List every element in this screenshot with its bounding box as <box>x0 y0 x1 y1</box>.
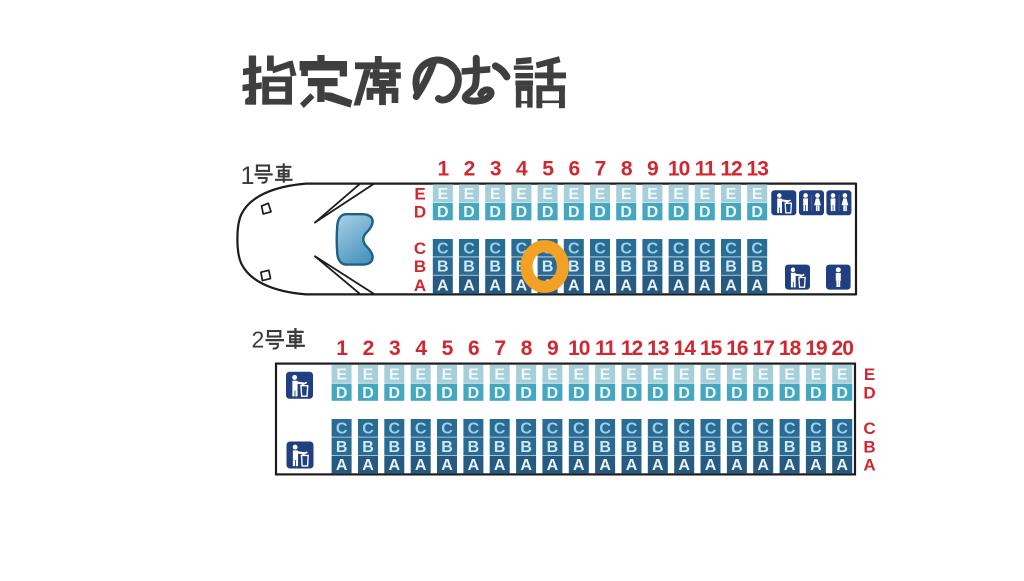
svg-text:D: D <box>863 383 875 402</box>
svg-text:B: B <box>699 259 711 276</box>
svg-text:16: 16 <box>726 337 748 360</box>
svg-text:E: E <box>336 367 347 384</box>
svg-text:7: 7 <box>595 158 606 181</box>
svg-text:A: A <box>673 277 685 294</box>
svg-text:1: 1 <box>241 162 255 190</box>
svg-text:E: E <box>494 367 505 384</box>
svg-text:B: B <box>678 439 690 456</box>
svg-text:C: C <box>725 240 737 257</box>
svg-text:A: A <box>652 457 664 474</box>
svg-text:A: A <box>414 276 426 295</box>
svg-text:B: B <box>463 259 475 276</box>
svg-text:C: C <box>673 240 685 257</box>
svg-text:D: D <box>415 385 427 402</box>
svg-text:A: A <box>437 277 449 294</box>
svg-text:C: C <box>620 240 632 257</box>
svg-text:E: E <box>626 367 637 384</box>
svg-text:A: A <box>620 277 632 294</box>
svg-text:B: B <box>731 439 743 456</box>
svg-text:12: 12 <box>720 158 742 181</box>
svg-text:1: 1 <box>336 337 348 360</box>
svg-text:E: E <box>415 367 426 384</box>
svg-text:C: C <box>362 421 374 438</box>
svg-text:B: B <box>336 439 348 456</box>
svg-text:E: E <box>679 367 690 384</box>
svg-text:D: D <box>573 385 585 402</box>
svg-text:C: C <box>626 421 638 438</box>
svg-text:11: 11 <box>695 158 717 181</box>
svg-text:E: E <box>864 365 875 384</box>
svg-text:E: E <box>673 186 684 203</box>
svg-text:B: B <box>437 259 449 276</box>
svg-text:D: D <box>647 204 659 221</box>
svg-text:D: D <box>699 204 711 221</box>
svg-text:5: 5 <box>542 158 554 181</box>
svg-text:9: 9 <box>547 337 558 360</box>
svg-text:D: D <box>414 203 426 222</box>
svg-text:C: C <box>415 421 427 438</box>
svg-text:D: D <box>731 385 743 402</box>
svg-text:B: B <box>494 439 506 456</box>
svg-text:C: C <box>705 421 717 438</box>
svg-text:E: E <box>464 186 475 203</box>
svg-text:A: A <box>468 457 480 474</box>
svg-text:C: C <box>441 421 453 438</box>
svg-text:B: B <box>599 439 611 456</box>
svg-text:B: B <box>362 439 374 456</box>
svg-text:5: 5 <box>442 337 454 360</box>
svg-text:E: E <box>568 186 579 203</box>
svg-text:A: A <box>705 457 717 474</box>
svg-text:C: C <box>494 421 506 438</box>
svg-text:A: A <box>441 457 453 474</box>
svg-text:C: C <box>414 239 426 258</box>
svg-text:C: C <box>751 240 763 257</box>
svg-text:D: D <box>784 385 796 402</box>
svg-text:A: A <box>336 457 348 474</box>
svg-text:E: E <box>752 186 763 203</box>
svg-text:D: D <box>437 204 449 221</box>
svg-text:D: D <box>362 385 374 402</box>
svg-text:E: E <box>837 367 848 384</box>
svg-text:B: B <box>863 437 875 456</box>
svg-text:E: E <box>758 367 769 384</box>
svg-text:B: B <box>784 439 796 456</box>
svg-text:A: A <box>751 277 763 294</box>
svg-text:C: C <box>520 421 532 438</box>
svg-text:D: D <box>757 385 769 402</box>
svg-text:E: E <box>784 367 795 384</box>
svg-text:B: B <box>757 439 769 456</box>
svg-text:D: D <box>389 385 401 402</box>
svg-text:10: 10 <box>568 337 590 360</box>
svg-text:D: D <box>336 385 348 402</box>
svg-text:B: B <box>626 439 638 456</box>
svg-text:6: 6 <box>468 337 479 360</box>
svg-text:A: A <box>568 277 580 294</box>
svg-text:D: D <box>810 385 822 402</box>
svg-text:B: B <box>542 259 554 276</box>
svg-text:E: E <box>600 367 611 384</box>
svg-text:17: 17 <box>753 337 775 360</box>
svg-text:E: E <box>468 367 479 384</box>
svg-text:14: 14 <box>674 337 697 360</box>
svg-text:D: D <box>725 204 737 221</box>
svg-text:A: A <box>573 457 585 474</box>
svg-text:B: B <box>620 259 632 276</box>
svg-text:C: C <box>652 421 664 438</box>
svg-text:2: 2 <box>464 158 475 181</box>
svg-text:B: B <box>652 439 664 456</box>
svg-text:4: 4 <box>415 337 427 360</box>
svg-text:D: D <box>441 385 453 402</box>
svg-text:19: 19 <box>805 337 827 360</box>
svg-text:D: D <box>542 204 554 221</box>
svg-text:C: C <box>594 240 606 257</box>
svg-text:A: A <box>494 457 506 474</box>
svg-text:C: C <box>836 421 848 438</box>
svg-text:2: 2 <box>252 327 265 353</box>
svg-text:A: A <box>626 457 638 474</box>
svg-text:B: B <box>725 259 737 276</box>
svg-text:E: E <box>621 186 632 203</box>
svg-text:B: B <box>836 439 848 456</box>
svg-text:D: D <box>594 204 606 221</box>
svg-text:E: E <box>542 186 553 203</box>
svg-text:8: 8 <box>621 158 633 181</box>
svg-text:E: E <box>442 367 453 384</box>
svg-text:D: D <box>547 385 559 402</box>
svg-text:B: B <box>414 257 426 276</box>
svg-text:C: C <box>463 240 475 257</box>
svg-text:C: C <box>336 421 348 438</box>
svg-text:A: A <box>415 457 427 474</box>
svg-text:D: D <box>652 385 664 402</box>
svg-text:D: D <box>494 385 506 402</box>
svg-text:E: E <box>595 186 606 203</box>
svg-text:B: B <box>705 439 717 456</box>
svg-text:C: C <box>437 240 449 257</box>
svg-text:C: C <box>699 240 711 257</box>
svg-text:E: E <box>437 186 448 203</box>
svg-text:E: E <box>521 367 532 384</box>
svg-text:D: D <box>705 385 717 402</box>
svg-text:C: C <box>757 421 769 438</box>
svg-text:A: A <box>389 457 401 474</box>
svg-text:E: E <box>726 186 737 203</box>
svg-text:B: B <box>415 439 427 456</box>
svg-text:A: A <box>599 457 611 474</box>
svg-text:2: 2 <box>363 337 374 360</box>
svg-text:20: 20 <box>832 337 854 360</box>
svg-text:B: B <box>547 439 559 456</box>
svg-text:D: D <box>463 204 475 221</box>
svg-text:B: B <box>568 259 580 276</box>
svg-text:E: E <box>363 367 374 384</box>
svg-text:A: A <box>810 457 822 474</box>
svg-text:E: E <box>414 184 425 203</box>
svg-text:15: 15 <box>700 337 723 360</box>
svg-text:E: E <box>573 367 584 384</box>
svg-text:A: A <box>725 277 737 294</box>
svg-text:A: A <box>594 277 606 294</box>
svg-text:E: E <box>647 186 658 203</box>
svg-text:B: B <box>441 439 453 456</box>
svg-text:A: A <box>699 277 711 294</box>
svg-text:A: A <box>547 457 559 474</box>
svg-text:E: E <box>516 186 527 203</box>
svg-text:12: 12 <box>621 337 643 360</box>
svg-text:E: E <box>547 367 558 384</box>
svg-text:E: E <box>652 367 663 384</box>
svg-text:E: E <box>811 367 822 384</box>
svg-text:D: D <box>568 204 580 221</box>
svg-text:B: B <box>751 259 763 276</box>
svg-text:C: C <box>573 421 585 438</box>
svg-text:D: D <box>836 385 848 402</box>
svg-text:E: E <box>389 367 400 384</box>
svg-text:8: 8 <box>521 337 533 360</box>
svg-text:B: B <box>389 439 401 456</box>
svg-text:B: B <box>810 439 822 456</box>
svg-text:C: C <box>810 421 822 438</box>
svg-text:C: C <box>568 240 580 257</box>
svg-text:C: C <box>468 421 480 438</box>
svg-text:D: D <box>751 204 763 221</box>
svg-text:A: A <box>489 277 501 294</box>
svg-text:A: A <box>463 277 475 294</box>
svg-text:A: A <box>757 457 769 474</box>
svg-text:A: A <box>836 457 848 474</box>
svg-text:B: B <box>673 259 685 276</box>
svg-text:A: A <box>784 457 796 474</box>
svg-text:13: 13 <box>647 337 669 360</box>
svg-text:C: C <box>678 421 690 438</box>
svg-text:E: E <box>490 186 501 203</box>
svg-text:1: 1 <box>437 158 449 181</box>
svg-text:9: 9 <box>647 158 658 181</box>
svg-text:E: E <box>732 367 743 384</box>
svg-text:3: 3 <box>490 158 501 181</box>
svg-text:A: A <box>731 457 743 474</box>
svg-text:C: C <box>599 421 611 438</box>
svg-text:7: 7 <box>494 337 505 360</box>
svg-text:D: D <box>678 385 690 402</box>
svg-text:13: 13 <box>747 158 769 181</box>
svg-text:C: C <box>731 421 743 438</box>
svg-text:3: 3 <box>389 337 400 360</box>
svg-text:D: D <box>620 204 632 221</box>
svg-text:18: 18 <box>779 337 802 360</box>
svg-text:C: C <box>784 421 796 438</box>
svg-text:E: E <box>699 186 710 203</box>
svg-text:B: B <box>573 439 585 456</box>
svg-text:B: B <box>647 259 659 276</box>
svg-text:B: B <box>594 259 606 276</box>
svg-text:E: E <box>705 367 716 384</box>
svg-text:4: 4 <box>516 158 528 181</box>
svg-text:D: D <box>520 385 532 402</box>
svg-text:D: D <box>626 385 638 402</box>
svg-text:C: C <box>389 421 401 438</box>
svg-text:C: C <box>489 240 501 257</box>
svg-text:D: D <box>599 385 611 402</box>
svg-text:B: B <box>468 439 480 456</box>
svg-text:C: C <box>863 419 875 438</box>
svg-text:6: 6 <box>568 158 579 181</box>
svg-text:A: A <box>647 277 659 294</box>
svg-text:D: D <box>489 204 501 221</box>
svg-text:A: A <box>362 457 374 474</box>
svg-text:D: D <box>673 204 685 221</box>
svg-text:10: 10 <box>668 158 690 181</box>
svg-text:A: A <box>863 456 875 475</box>
svg-text:C: C <box>647 240 659 257</box>
svg-text:11: 11 <box>595 337 617 360</box>
svg-text:A: A <box>520 457 532 474</box>
svg-text:B: B <box>489 259 501 276</box>
svg-text:D: D <box>468 385 480 402</box>
svg-text:D: D <box>516 204 528 221</box>
svg-text:A: A <box>678 457 690 474</box>
svg-text:C: C <box>547 421 559 438</box>
svg-text:B: B <box>520 439 532 456</box>
